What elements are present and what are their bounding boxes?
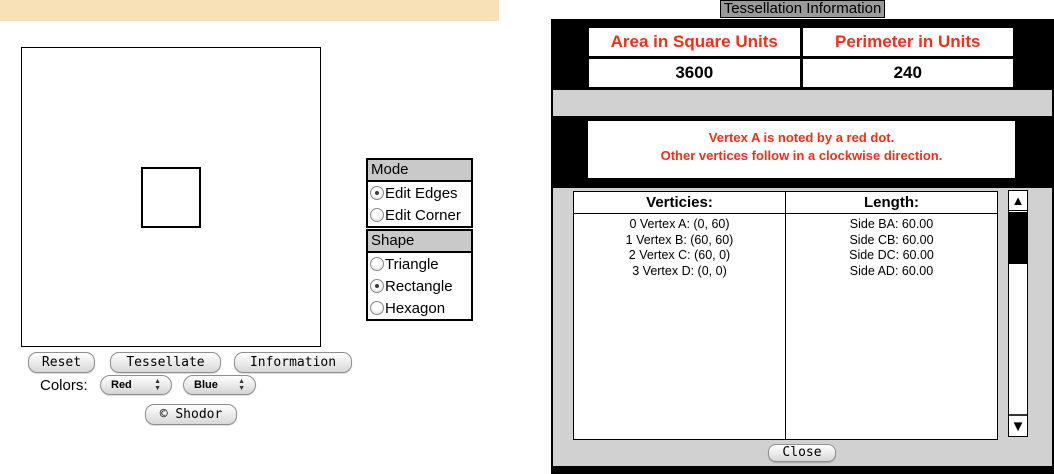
tessellation-information-window: Tessellation Information Area in Square … xyxy=(551,0,1054,474)
vertices-length-table: Verticies: Length: 0 Vertex A: (0, 60) 1… xyxy=(573,191,998,440)
table-header-row: Verticies: Length: xyxy=(574,192,997,214)
radio-selected-icon[interactable] xyxy=(370,279,384,293)
divider-bar xyxy=(553,90,1052,116)
area-value: 3600 xyxy=(589,59,800,87)
color-select-1-value: Red xyxy=(111,379,132,391)
length-column: Side BA: 60.00 Side CB: 60.00 Side DC: 6… xyxy=(786,214,997,439)
shodor-button[interactable]: © Shodor xyxy=(145,404,237,425)
tessellate-button[interactable]: Tessellate xyxy=(110,352,221,373)
table-row: Side DC: 60.00 xyxy=(786,248,997,264)
area-header: Area in Square Units xyxy=(589,28,800,56)
shape-option-label: Rectangle xyxy=(385,278,453,295)
tessellation-canvas[interactable] xyxy=(21,47,321,347)
radio-selected-icon[interactable] xyxy=(370,186,384,200)
vertices-column-header: Verticies: xyxy=(574,192,785,213)
vertex-message-box: Vertex A is noted by a red dot. Other ve… xyxy=(588,121,1015,178)
table-row: 1 Vertex B: (60, 60) xyxy=(574,233,785,249)
color-select-2-value: Blue xyxy=(194,379,218,391)
stats-table: Area in Square Units Perimeter in Units … xyxy=(586,25,1016,90)
shape-panel-title: Shape xyxy=(368,231,471,253)
length-column-header: Length: xyxy=(785,192,997,213)
table-row: 2 Vertex C: (60, 0) xyxy=(574,248,785,264)
information-button[interactable]: Information xyxy=(234,352,352,373)
color-select-1[interactable]: Red ▲▼ xyxy=(100,375,172,395)
shape-option-hexagon[interactable]: Hexagon xyxy=(368,297,471,319)
vertical-scrollbar[interactable]: ▲ ▼ xyxy=(1008,190,1028,437)
shape-option-rectangle[interactable]: Rectangle xyxy=(368,275,471,297)
color-select-2[interactable]: Blue ▲▼ xyxy=(183,375,256,395)
details-area: Verticies: Length: 0 Vertex A: (0, 60) 1… xyxy=(553,188,1052,466)
close-button[interactable]: Close xyxy=(768,444,836,462)
shape-panel: Shape Triangle Rectangle Hexagon xyxy=(366,229,473,321)
perimeter-value: 240 xyxy=(803,59,1014,87)
table-row: 0 Vertex A: (0, 60) xyxy=(574,217,785,233)
table-body: 0 Vertex A: (0, 60) 1 Vertex B: (60, 60)… xyxy=(574,214,997,439)
colors-label: Colors: xyxy=(40,377,88,394)
mode-option-edit-edges[interactable]: Edit Edges xyxy=(368,182,471,204)
shape-rectangle[interactable] xyxy=(141,167,201,228)
table-row: Side AD: 60.00 xyxy=(786,264,997,280)
mode-panel-title: Mode xyxy=(368,160,471,182)
table-row: 3 Vertex D: (0, 0) xyxy=(574,264,785,280)
vertex-message-line2: Other vertices follow in a clockwise dir… xyxy=(588,147,1015,165)
info-window-title-strip: Tessellation Information xyxy=(551,0,1054,19)
shape-option-label: Hexagon xyxy=(385,300,445,317)
vertices-column: 0 Vertex A: (0, 60) 1 Vertex B: (60, 60)… xyxy=(574,214,786,439)
shape-option-label: Triangle xyxy=(385,256,439,273)
radio-unselected-icon[interactable] xyxy=(370,301,384,315)
top-banner-bar xyxy=(0,0,499,21)
table-row: Side CB: 60.00 xyxy=(786,233,997,249)
info-window-title: Tessellation Information xyxy=(720,0,886,18)
scroll-down-icon[interactable]: ▼ xyxy=(1009,414,1027,436)
scroll-up-icon[interactable]: ▲ xyxy=(1009,191,1027,211)
mode-option-label: Edit Edges xyxy=(385,185,458,202)
table-row: Side BA: 60.00 xyxy=(786,217,997,233)
shape-option-triangle[interactable]: Triangle xyxy=(368,253,471,275)
scrollbar-thumb[interactable] xyxy=(1009,212,1027,264)
radio-unselected-icon[interactable] xyxy=(370,208,384,222)
popup-arrows-icon: ▲▼ xyxy=(154,378,161,392)
mode-option-edit-corner[interactable]: Edit Corner xyxy=(368,204,471,226)
reset-button[interactable]: Reset xyxy=(28,352,95,373)
mode-option-label: Edit Corner xyxy=(385,207,461,224)
perimeter-header: Perimeter in Units xyxy=(803,28,1014,56)
vertex-message-line1: Vertex A is noted by a red dot. xyxy=(588,129,1015,147)
popup-arrows-icon: ▲▼ xyxy=(238,378,245,392)
mode-panel: Mode Edit Edges Edit Corner xyxy=(366,158,473,228)
radio-unselected-icon[interactable] xyxy=(370,257,384,271)
tessellation-app: Mode Edit Edges Edit Corner Shape Triang… xyxy=(0,0,1054,474)
